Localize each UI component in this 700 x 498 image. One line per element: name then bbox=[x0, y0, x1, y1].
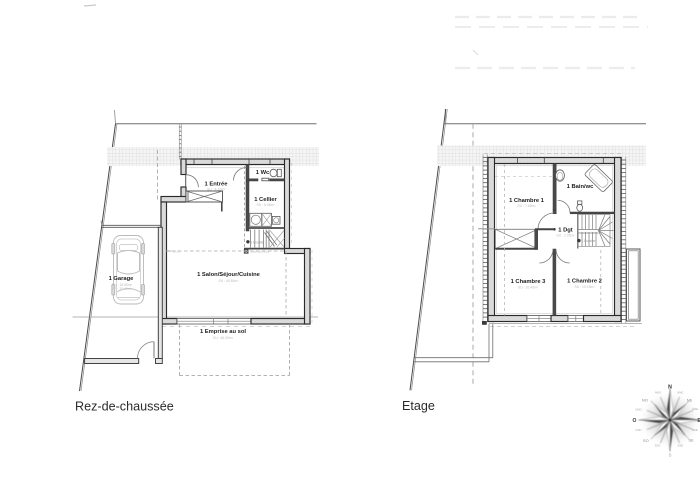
svg-text:1 Bain/wc: 1 Bain/wc bbox=[567, 184, 595, 190]
svg-text:ESE: ESE bbox=[692, 428, 698, 432]
svg-text:1 Garage: 1 Garage bbox=[109, 276, 135, 282]
svg-text:SE: SE bbox=[688, 438, 694, 443]
svg-text:±0.00: ±0.00 bbox=[173, 250, 181, 254]
svg-text:SU : 18.50m²: SU : 18.50m² bbox=[112, 283, 133, 287]
svg-text:SO: SO bbox=[643, 438, 649, 443]
svg-text:1 Chambre 3: 1 Chambre 3 bbox=[511, 279, 547, 285]
svg-text:SU : 4.32m²: SU : 4.32m² bbox=[207, 187, 226, 191]
svg-text:1 Emprise au sol: 1 Emprise au sol bbox=[200, 329, 246, 335]
svg-text:SU : 10.15m²: SU : 10.15m² bbox=[575, 285, 596, 289]
svg-text:SU : 2.95m²: SU : 2.95m² bbox=[556, 233, 575, 237]
svg-text:SU : 7.65m²: SU : 7.65m² bbox=[517, 204, 536, 208]
svg-text:1 Chambre 1: 1 Chambre 1 bbox=[509, 198, 545, 204]
svg-text:Etage: Etage bbox=[402, 399, 435, 413]
svg-text:NO: NO bbox=[642, 398, 648, 403]
svg-text:O: O bbox=[633, 418, 637, 424]
svg-text:1 Escalier: 1 Escalier bbox=[251, 240, 266, 244]
svg-text:SU : 10.40m²: SU : 10.40m² bbox=[518, 285, 539, 289]
svg-text:OSO: OSO bbox=[635, 428, 642, 432]
svg-text:SU : 5.06m²: SU : 5.06m² bbox=[256, 203, 275, 207]
svg-text:N: N bbox=[668, 385, 672, 391]
svg-text:ENE: ENE bbox=[692, 407, 698, 411]
svg-text:1 Wc: 1 Wc bbox=[256, 170, 270, 176]
svg-text:Rez-de-chaussée: Rez-de-chaussée bbox=[75, 400, 174, 414]
svg-text:NNO: NNO bbox=[655, 391, 662, 395]
svg-text:1 Chambre 2: 1 Chambre 2 bbox=[567, 279, 602, 285]
svg-text:NE: NE bbox=[687, 398, 693, 403]
svg-text:2.80 1.00 2.20: 2.80 1.00 2.20 bbox=[251, 250, 269, 254]
svg-text:SU : 46.84m²: SU : 46.84m² bbox=[219, 279, 240, 283]
svg-text:ONO: ONO bbox=[635, 408, 642, 412]
svg-text:SU : 66.30m²: SU : 66.30m² bbox=[213, 336, 234, 340]
svg-text:1 Escalier: 1 Escalier bbox=[582, 239, 597, 243]
svg-text:SSE: SSE bbox=[677, 444, 683, 448]
svg-text:1 Salon/Séjour/Cuisine: 1 Salon/Séjour/Cuisine bbox=[197, 272, 261, 278]
svg-text:NNE: NNE bbox=[677, 391, 683, 395]
svg-text:S: S bbox=[669, 453, 672, 458]
svg-text:SSO: SSO bbox=[654, 444, 661, 448]
svg-text:SP : 36.60m²: SP : 36.60m² bbox=[112, 287, 133, 291]
